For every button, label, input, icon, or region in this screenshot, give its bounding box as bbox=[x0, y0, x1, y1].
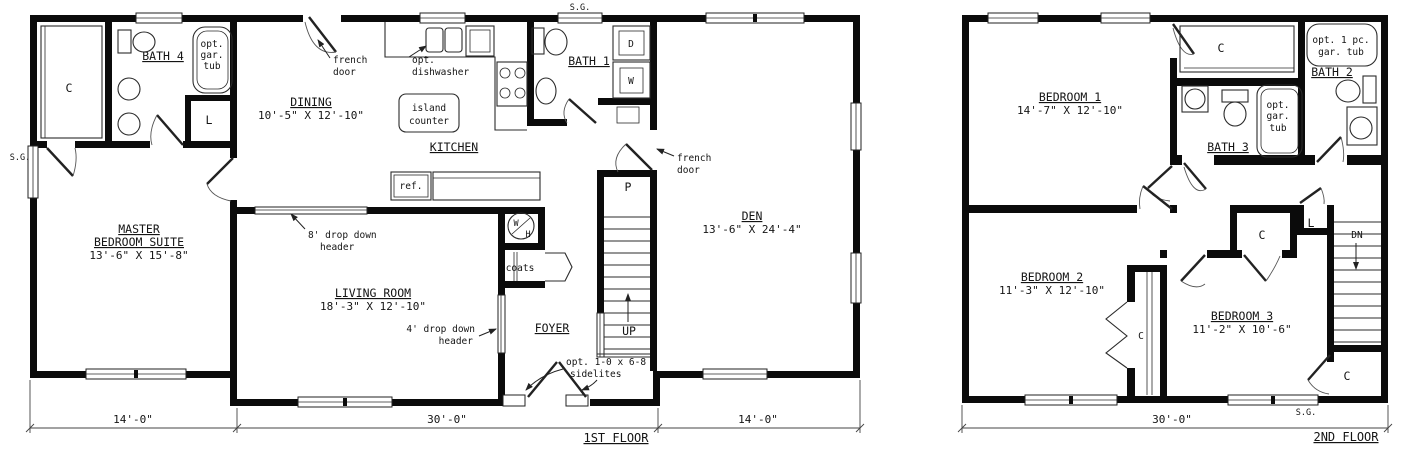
sg-label-left: S.G. bbox=[10, 153, 30, 163]
closet-label: C bbox=[66, 81, 73, 95]
bath1-fixtures bbox=[532, 28, 567, 104]
french-door-den bbox=[616, 144, 652, 172]
kitchen-label: KITCHEN bbox=[430, 140, 479, 154]
header8-label-1: 8' drop down bbox=[308, 230, 377, 241]
dining-label: DINING bbox=[290, 95, 332, 109]
bedroom1-door bbox=[1148, 166, 1172, 201]
sg-label-top: S.G. bbox=[570, 3, 590, 13]
french-door-label-2a: french bbox=[677, 153, 711, 164]
bath4-door bbox=[151, 115, 183, 145]
living-room-label: LIVING ROOM bbox=[335, 286, 411, 300]
master-door bbox=[207, 158, 233, 201]
second-floor-labels: C opt. 1 pc. gar. tub BATH 2 opt. gar. t… bbox=[999, 35, 1370, 418]
first-floor-dimensions: 14'-0" 30'-0" 14'-0" 1ST FLOOR bbox=[26, 380, 864, 445]
window bbox=[420, 13, 465, 23]
first-floor-title: 1ST FLOOR bbox=[583, 431, 649, 445]
stove-icon bbox=[497, 62, 527, 106]
dim-middle: 30'-0" bbox=[427, 413, 467, 426]
bedroom3-label: BEDROOM 3 bbox=[1211, 309, 1273, 323]
up-label: UP bbox=[622, 324, 636, 338]
living-room-dims: 18'-3" X 12'-10" bbox=[320, 300, 426, 313]
foyer-label: FOYER bbox=[535, 321, 570, 335]
bath1-door bbox=[564, 99, 596, 123]
ref-label: ref. bbox=[400, 181, 423, 192]
window bbox=[86, 369, 186, 379]
gar-tub2-label-2: gar. bbox=[1267, 111, 1290, 122]
linen-label: L bbox=[206, 113, 213, 127]
stair-side-opening bbox=[597, 313, 604, 357]
second-floor-title: 2ND FLOOR bbox=[1313, 430, 1379, 444]
bath3-label: BATH 3 bbox=[1207, 140, 1249, 154]
window bbox=[851, 103, 861, 150]
peninsula-counter bbox=[433, 172, 540, 200]
french-door-label-1a: french bbox=[333, 55, 367, 66]
window bbox=[851, 253, 861, 303]
master-label-2: BEDROOM SUITE bbox=[94, 235, 184, 249]
opt-dishwasher-2: dishwasher bbox=[412, 67, 469, 78]
sidelites-label-2: sidelites bbox=[570, 369, 621, 380]
island-counter-2: counter bbox=[409, 116, 449, 127]
header8-label-2: header bbox=[320, 242, 355, 253]
gar-tub2-label-1: opt. bbox=[1267, 100, 1290, 111]
window bbox=[1025, 395, 1117, 405]
wh-h-label: H bbox=[525, 230, 530, 240]
master-label-1: MASTER bbox=[118, 222, 160, 236]
bedroom1-dims: 14'-7" X 12'-10" bbox=[1017, 104, 1123, 117]
closet3-label: C bbox=[1259, 228, 1266, 242]
tub-1pc-label-2: gar. tub bbox=[1318, 47, 1364, 58]
bath2-label: BATH 2 bbox=[1311, 65, 1353, 79]
opt-gar-tub-line2: gar. bbox=[201, 50, 224, 61]
header4-label-1: 4' drop down bbox=[406, 324, 475, 335]
coats-door bbox=[545, 253, 572, 281]
second-floor-plan: C opt. 1 pc. gar. tub BATH 2 opt. gar. t… bbox=[958, 13, 1392, 444]
bath2-door bbox=[1317, 137, 1344, 162]
dining-dims: 10'-5" X 12'-10" bbox=[258, 109, 364, 122]
sidelites-label-1: opt. 1-0 x 6-8 bbox=[566, 357, 646, 368]
bath3-door bbox=[1184, 163, 1206, 191]
bedroom2-dims: 11'-3" X 12'-10" bbox=[999, 284, 1105, 297]
opt-gar-tub-line3: tub bbox=[203, 61, 220, 72]
bedroom3-dims: 11'-2" X 10'-6" bbox=[1192, 323, 1291, 336]
dryer-label: D bbox=[628, 39, 634, 50]
drop-down-header-8ft bbox=[255, 207, 367, 214]
den-dims: 13'-6" X 24'-4" bbox=[702, 223, 801, 236]
closet1-label: C bbox=[1218, 41, 1225, 55]
closet4-door bbox=[1308, 355, 1330, 394]
window bbox=[1101, 13, 1150, 23]
bedroom2-closet-bifold bbox=[1106, 302, 1127, 368]
kitchen-fixtures bbox=[385, 22, 540, 200]
french-door-label-2b: door bbox=[677, 165, 700, 176]
closet-door bbox=[47, 148, 76, 176]
bedroom2-label: BEDROOM 2 bbox=[1021, 270, 1083, 284]
den-label: DEN bbox=[742, 209, 763, 223]
second-floor-dimensions: 30'-0" 2ND FLOOR bbox=[958, 405, 1392, 444]
dim-left: 14'-0" bbox=[113, 413, 153, 426]
window bbox=[703, 369, 767, 379]
opt-dishwasher-1: opt. bbox=[412, 55, 435, 66]
drop-down-header-4ft bbox=[498, 295, 505, 353]
linen2-label: L bbox=[1308, 216, 1315, 230]
linen-door bbox=[1300, 188, 1324, 204]
bath4-label: BATH 4 bbox=[142, 49, 184, 63]
bedroom2-door bbox=[1139, 186, 1172, 209]
kitchen-sink-icon bbox=[426, 28, 462, 52]
closet1-door bbox=[1173, 24, 1194, 54]
bedroom1-label: BEDROOM 1 bbox=[1039, 90, 1101, 104]
bath1-label: BATH 1 bbox=[568, 54, 610, 68]
wh-w-label: W bbox=[513, 219, 519, 229]
window bbox=[298, 397, 392, 407]
bedroom3-door bbox=[1181, 255, 1205, 287]
window-sg-kitchen bbox=[558, 13, 602, 23]
floor-plan-svg: BATH 4 opt. gar. tub C L S.G. S.G. DININ… bbox=[0, 0, 1407, 455]
window bbox=[988, 13, 1038, 23]
window bbox=[136, 13, 182, 23]
closet4-label: C bbox=[1344, 369, 1351, 383]
closet3-door bbox=[1244, 255, 1280, 281]
dn-label: DN bbox=[1351, 230, 1363, 241]
dishwasher-icon bbox=[466, 26, 494, 56]
french-door-label-1b: door bbox=[333, 67, 356, 78]
sg-label-2nd: S.G. bbox=[1296, 408, 1316, 418]
opt-gar-tub-line1: opt. bbox=[201, 39, 224, 50]
window-sg bbox=[1228, 395, 1318, 405]
pantry-label: P bbox=[625, 180, 632, 194]
window-double-den bbox=[706, 13, 804, 23]
coats-label: coats bbox=[506, 263, 535, 274]
floor-plan-drawing: BATH 4 opt. gar. tub C L S.G. S.G. DININ… bbox=[0, 0, 1407, 455]
gar-tub2-label-3: tub bbox=[1269, 123, 1286, 134]
header4-label-2: header bbox=[439, 336, 474, 347]
first-floor-labels: BATH 4 opt. gar. tub C L S.G. S.G. DININ… bbox=[10, 3, 802, 380]
dim-width-2nd: 30'-0" bbox=[1152, 413, 1192, 426]
washer-label: W bbox=[628, 76, 634, 87]
dim-right: 14'-0" bbox=[738, 413, 778, 426]
master-dims: 13'-6" X 15'-8" bbox=[89, 249, 188, 262]
tub-1pc-label-1: opt. 1 pc. bbox=[1312, 35, 1369, 46]
first-floor-plan: BATH 4 opt. gar. tub C L S.G. S.G. DININ… bbox=[10, 3, 864, 445]
island-counter-1: island bbox=[412, 103, 446, 114]
closet2-label: C bbox=[1138, 331, 1144, 342]
